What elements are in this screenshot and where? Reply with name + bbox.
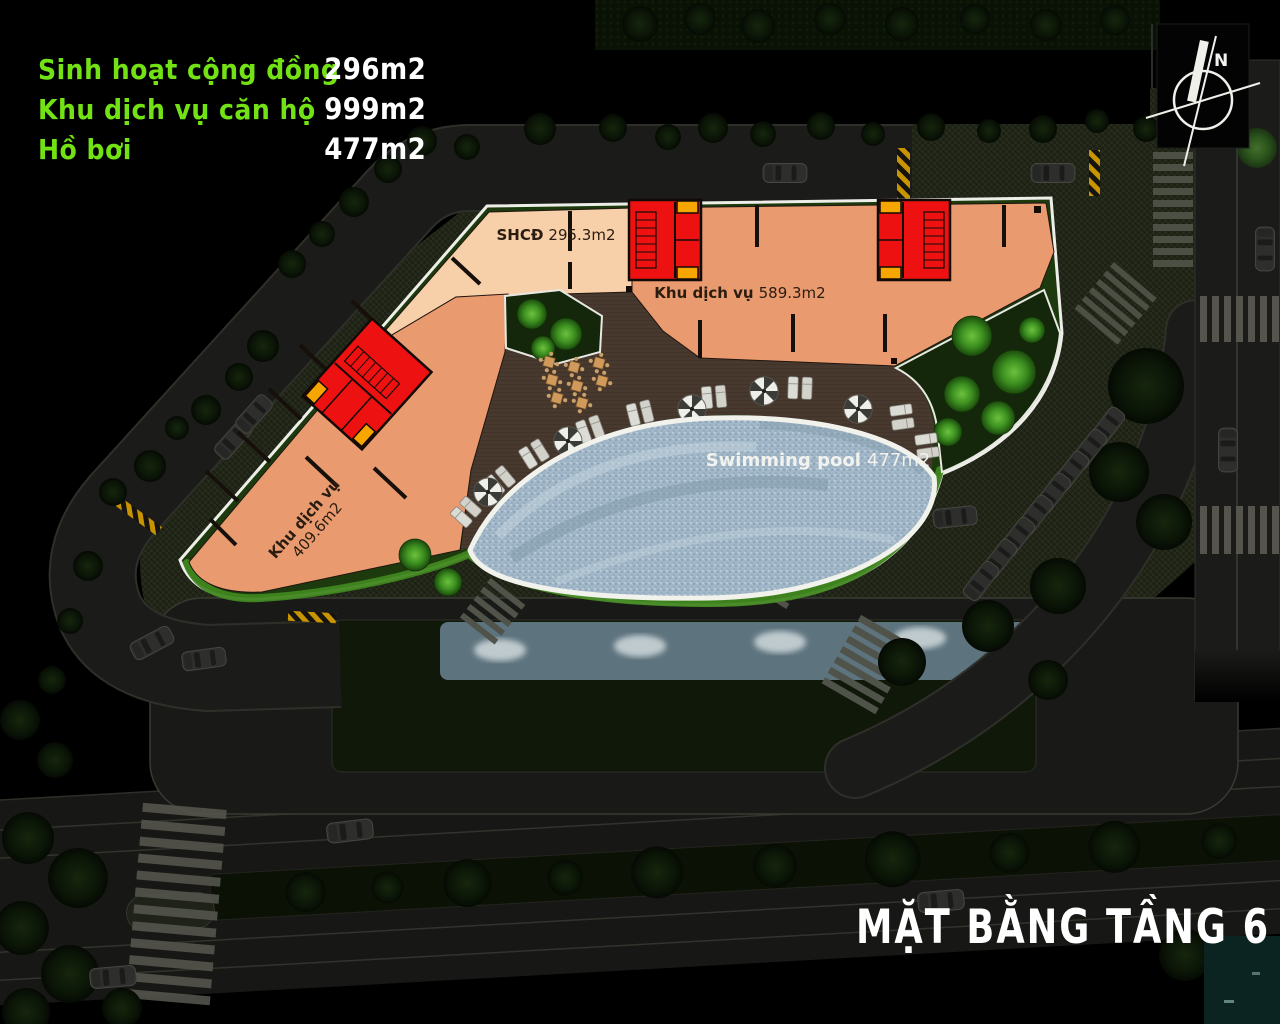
- north-label: N: [1214, 51, 1228, 71]
- stair-core: [878, 200, 950, 280]
- hazard-stripe: [1089, 150, 1100, 196]
- water-feature: [440, 622, 1032, 680]
- car: [763, 164, 807, 183]
- car: [1256, 227, 1275, 271]
- legend-row: Sinh hoạt cộng đồng 296m2: [38, 52, 426, 92]
- tree: [434, 568, 462, 596]
- service-right-label: Khu dịch vụ589.3m2: [654, 284, 825, 302]
- tree: [399, 539, 431, 571]
- legend-label: Sinh hoạt cộng đồng: [38, 53, 324, 86]
- pool-label: Swimming pool477m2: [706, 450, 931, 471]
- elevator: [677, 201, 698, 213]
- elevator: [677, 267, 698, 279]
- legend-label: Hồ bơi: [38, 133, 324, 166]
- page-title: MẶT BẰNG TẦNG 6: [856, 900, 1270, 955]
- floor-plan-page: SHCĐ295.3m2 Khu dịch vụ589.3m2 Khu dịch …: [0, 0, 1280, 1024]
- legend-value: 477m2: [324, 132, 426, 166]
- legend: Sinh hoạt cộng đồng 296m2 Khu dịch vụ că…: [38, 52, 469, 172]
- community-area-label: SHCĐ295.3m2: [496, 226, 615, 244]
- stair-core: [629, 200, 701, 280]
- car: [1219, 428, 1238, 472]
- legend-label: Khu dịch vụ căn hộ: [38, 93, 324, 126]
- legend-row: Khu dịch vụ căn hộ 999m2: [38, 92, 426, 132]
- car: [89, 965, 137, 989]
- car: [1031, 164, 1075, 183]
- vegetation-band: [595, 0, 1160, 50]
- car: [932, 505, 977, 528]
- elevator: [880, 267, 901, 279]
- legend-row: Hồ bơi 477m2: [38, 132, 426, 172]
- legend-value: 296m2: [324, 52, 426, 86]
- legend-value: 999m2: [324, 92, 426, 126]
- north-compass: N: [1146, 24, 1260, 166]
- elevator: [880, 201, 901, 213]
